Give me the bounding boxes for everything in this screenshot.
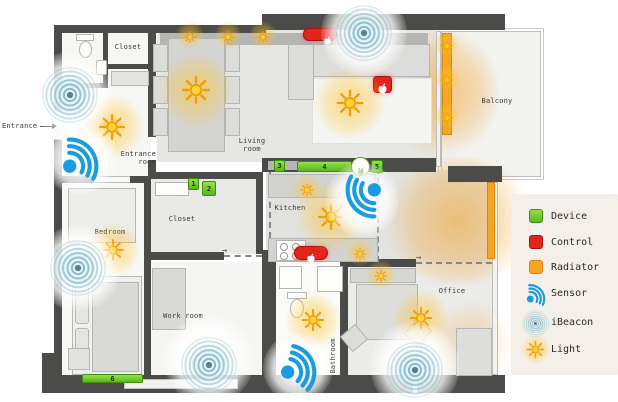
wall [448,166,502,182]
light-radiator-2[interactable] [441,72,454,85]
light-legend-icon [526,340,545,359]
legend-label: Radiator [551,262,599,273]
door-swing-arrow-icon: → [222,247,227,256]
door-swing-arrow-icon: → [416,254,421,263]
legend-label: Sensor [551,288,587,299]
entrance-label: Entrance [2,122,36,130]
light-wall-2[interactable] [222,29,235,42]
ibeacon-living[interactable] [336,5,392,61]
zone-line [224,255,262,257]
room-label-closet-top: Closet [103,43,153,51]
device-marker-6[interactable]: 6 [82,374,143,383]
legend-item-light: Light [511,340,618,360]
legend-item-radiator: Radiator [511,260,618,280]
washer [279,266,302,289]
floorplan-canvas: → → Closet Entrance room Livin [0,0,618,402]
light-bathroom[interactable] [301,308,325,332]
closet-shelf [155,182,189,196]
light-sofa[interactable] [336,89,365,118]
ibeacon-office[interactable] [387,342,443,398]
device-legend-icon [529,209,543,223]
legend-item-ibeacon: iBeacon [511,310,618,330]
legend-item-device: Device [511,209,618,229]
wall [144,176,151,375]
light-kitchen-3[interactable] [354,246,367,259]
legend-panel: Device Control Radiator Sensor iBeacon L… [511,194,618,375]
sensor-legend-icon [518,277,554,313]
device-marker-3[interactable]: 3 [274,160,285,172]
light-office-1[interactable] [374,268,388,282]
ibeacon-bedroom[interactable] [50,240,106,296]
legend-label: Control [551,237,593,248]
light-radiator-3[interactable] [441,110,454,123]
legend-item-device [511,15,618,35]
office-desk-2 [456,328,492,376]
chair [225,108,240,136]
ibeacon-legend-icon [522,310,549,337]
device-marker-1[interactable]: 1 [188,178,199,190]
device-marker-2[interactable]: 2 [202,181,216,196]
work-desk [152,268,186,330]
ibeacon-work-room[interactable] [181,337,237,393]
legend-label: Device [551,211,587,222]
room-label-closet-inner: Closet [158,215,206,223]
light-wall-1[interactable] [184,29,197,42]
radiator-legend-icon [529,260,543,274]
sofa-arm [288,44,314,100]
legend-item-sensor: Sensor [511,282,618,302]
nightstand [68,348,90,370]
zone-line [416,262,492,264]
legend-item-control: Control [511,235,618,255]
burner [280,252,288,260]
wall [150,172,262,179]
legend-label: iBeacon [551,317,593,328]
apple-logo-icon [306,248,316,258]
burner [280,243,288,251]
room-label-living-room: Living room [228,137,276,153]
bath-cabinet [317,266,343,292]
control-legend-icon [529,235,543,249]
light-wall-3[interactable] [257,29,270,42]
light-radiator-1[interactable] [441,38,454,51]
closet-shelf [111,71,149,86]
radiator-2[interactable] [487,182,495,259]
toilet-tank [76,34,94,41]
wall [108,64,152,69]
room-label-balcony: Balcony [477,97,517,105]
legend-label: Light [551,344,581,355]
ibeacon-entrance[interactable] [42,67,98,123]
wall [148,252,224,260]
light-dining[interactable] [181,75,211,105]
wall [256,172,263,254]
wall [42,353,56,393]
